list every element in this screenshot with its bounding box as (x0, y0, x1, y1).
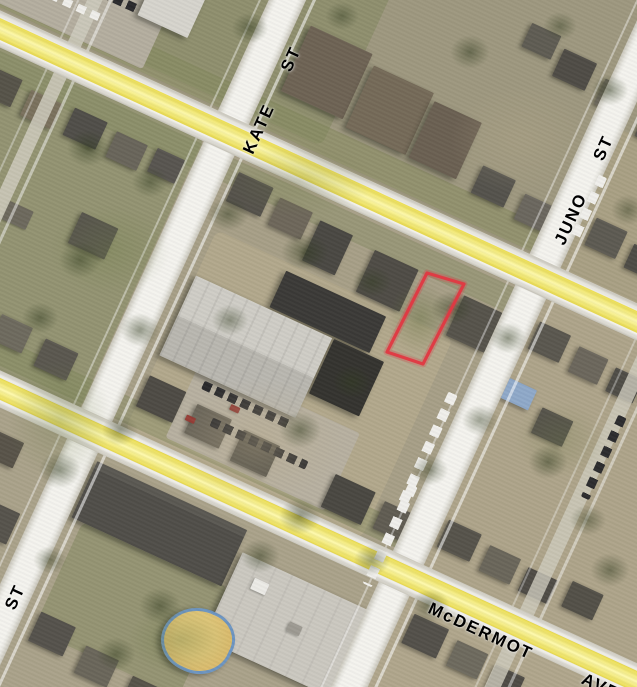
aerial-layer (0, 0, 637, 687)
map-canvas[interactable]: KATE ST JUNO ST ST McDERMOT AVE (0, 0, 637, 687)
